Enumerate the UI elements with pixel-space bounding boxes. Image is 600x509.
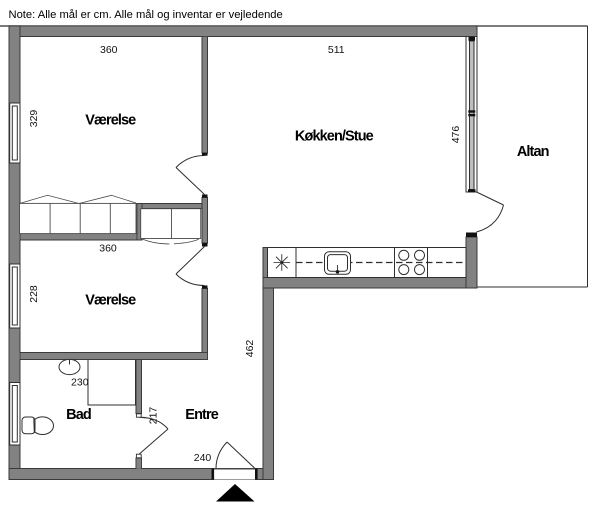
svg-text:462: 462 — [244, 340, 256, 358]
svg-text:228: 228 — [28, 285, 40, 303]
svg-text:Altan: Altan — [517, 144, 549, 160]
svg-text:217: 217 — [147, 407, 159, 425]
svg-text:Note: Alle mål er cm. Alle mål: Note: Alle mål er cm. Alle mål og invent… — [9, 9, 283, 21]
svg-text:360: 360 — [99, 242, 117, 254]
svg-text:230: 230 — [71, 377, 89, 389]
svg-text:Entre: Entre — [185, 407, 218, 423]
svg-text:Køkken/Stue: Køkken/Stue — [295, 129, 374, 145]
svg-text:329: 329 — [28, 110, 40, 128]
svg-text:476: 476 — [450, 126, 462, 144]
svg-text:Bad: Bad — [66, 407, 91, 423]
svg-text:360: 360 — [100, 44, 118, 56]
svg-text:511: 511 — [328, 44, 345, 56]
svg-text:Værelse: Værelse — [85, 293, 136, 309]
svg-text:240: 240 — [194, 452, 212, 464]
svg-text:Værelse: Værelse — [85, 113, 136, 129]
